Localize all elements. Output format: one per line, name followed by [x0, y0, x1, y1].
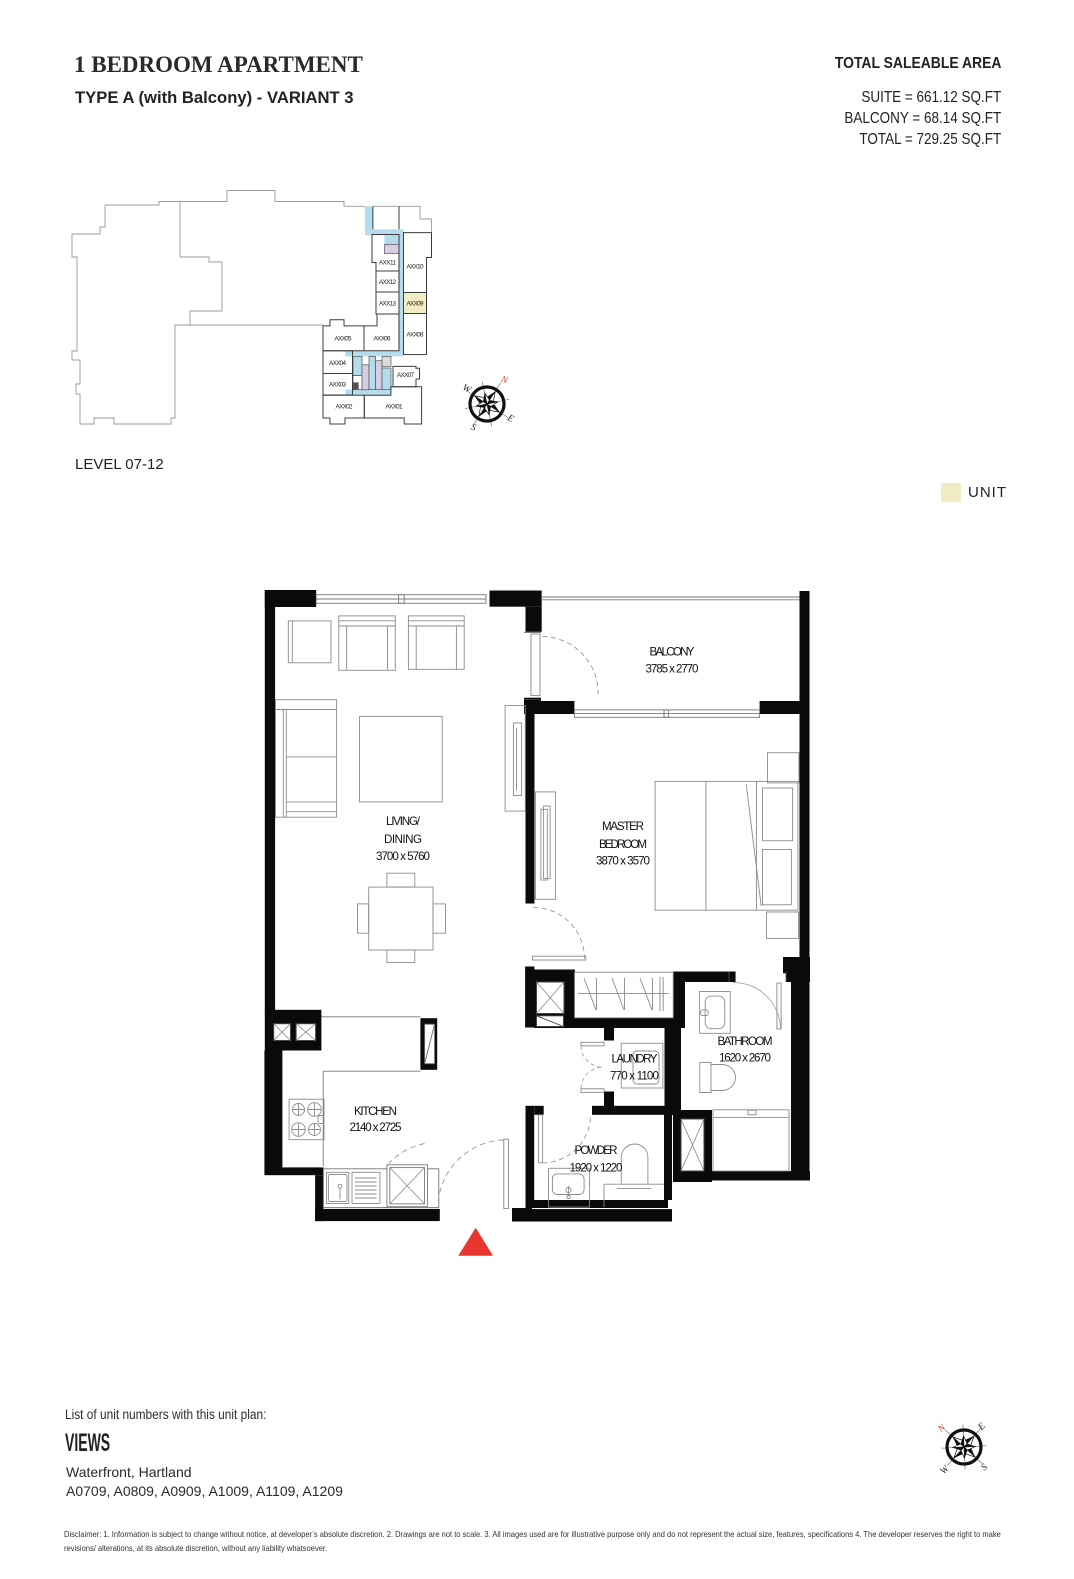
- svg-text:BEDROOM: BEDROOM: [599, 838, 647, 851]
- svg-text:DINING: DINING: [384, 833, 422, 846]
- svg-text:3700 x 5760: 3700 x 5760: [376, 850, 430, 863]
- svg-text:N: N: [499, 374, 510, 386]
- svg-text:LIVING/: LIVING/: [386, 815, 421, 828]
- svg-text:AXX08: AXX08: [407, 332, 424, 339]
- svg-text:AXX12: AXX12: [379, 279, 396, 286]
- svg-text:BATHROOM: BATHROOM: [718, 1035, 773, 1048]
- svg-text:AXX02: AXX02: [336, 404, 353, 411]
- svg-text:POWDER: POWDER: [575, 1144, 618, 1157]
- svg-text:2140 x 2725: 2140 x 2725: [350, 1121, 402, 1134]
- svg-text:AXX10: AXX10: [407, 263, 424, 270]
- svg-text:1620 x 2670: 1620 x 2670: [719, 1052, 771, 1065]
- svg-text:S: S: [469, 423, 477, 434]
- svg-text:W: W: [939, 1463, 952, 1476]
- svg-text:AXX04: AXX04: [329, 360, 346, 367]
- svg-text:AXX11: AXX11: [379, 259, 396, 266]
- svg-text:AXX07: AXX07: [397, 372, 414, 379]
- svg-text:AXX09: AXX09: [407, 301, 424, 308]
- svg-text:AXX05: AXX05: [335, 336, 352, 343]
- svg-text:3785 x 2770: 3785 x 2770: [646, 663, 699, 676]
- svg-text:S: S: [980, 1462, 990, 1473]
- svg-text:AXX06: AXX06: [374, 336, 391, 343]
- svg-text:KITCHEN: KITCHEN: [354, 1105, 397, 1118]
- svg-text:AXX01: AXX01: [386, 404, 403, 411]
- svg-text:AXX03: AXX03: [329, 382, 346, 389]
- svg-text:BALCONY: BALCONY: [650, 646, 695, 659]
- svg-text:AXX13: AXX13: [379, 301, 396, 308]
- svg-text:770 x 1100: 770 x 1100: [610, 1070, 659, 1083]
- svg-text:MASTER: MASTER: [602, 820, 644, 833]
- svg-text:3870 x 3570: 3870 x 3570: [596, 855, 650, 868]
- svg-text:LAUNDRY: LAUNDRY: [612, 1053, 658, 1066]
- svg-text:E: E: [505, 413, 516, 425]
- svg-text:1920 x 1220: 1920 x 1220: [570, 1162, 623, 1175]
- svg-text:N: N: [936, 1423, 949, 1436]
